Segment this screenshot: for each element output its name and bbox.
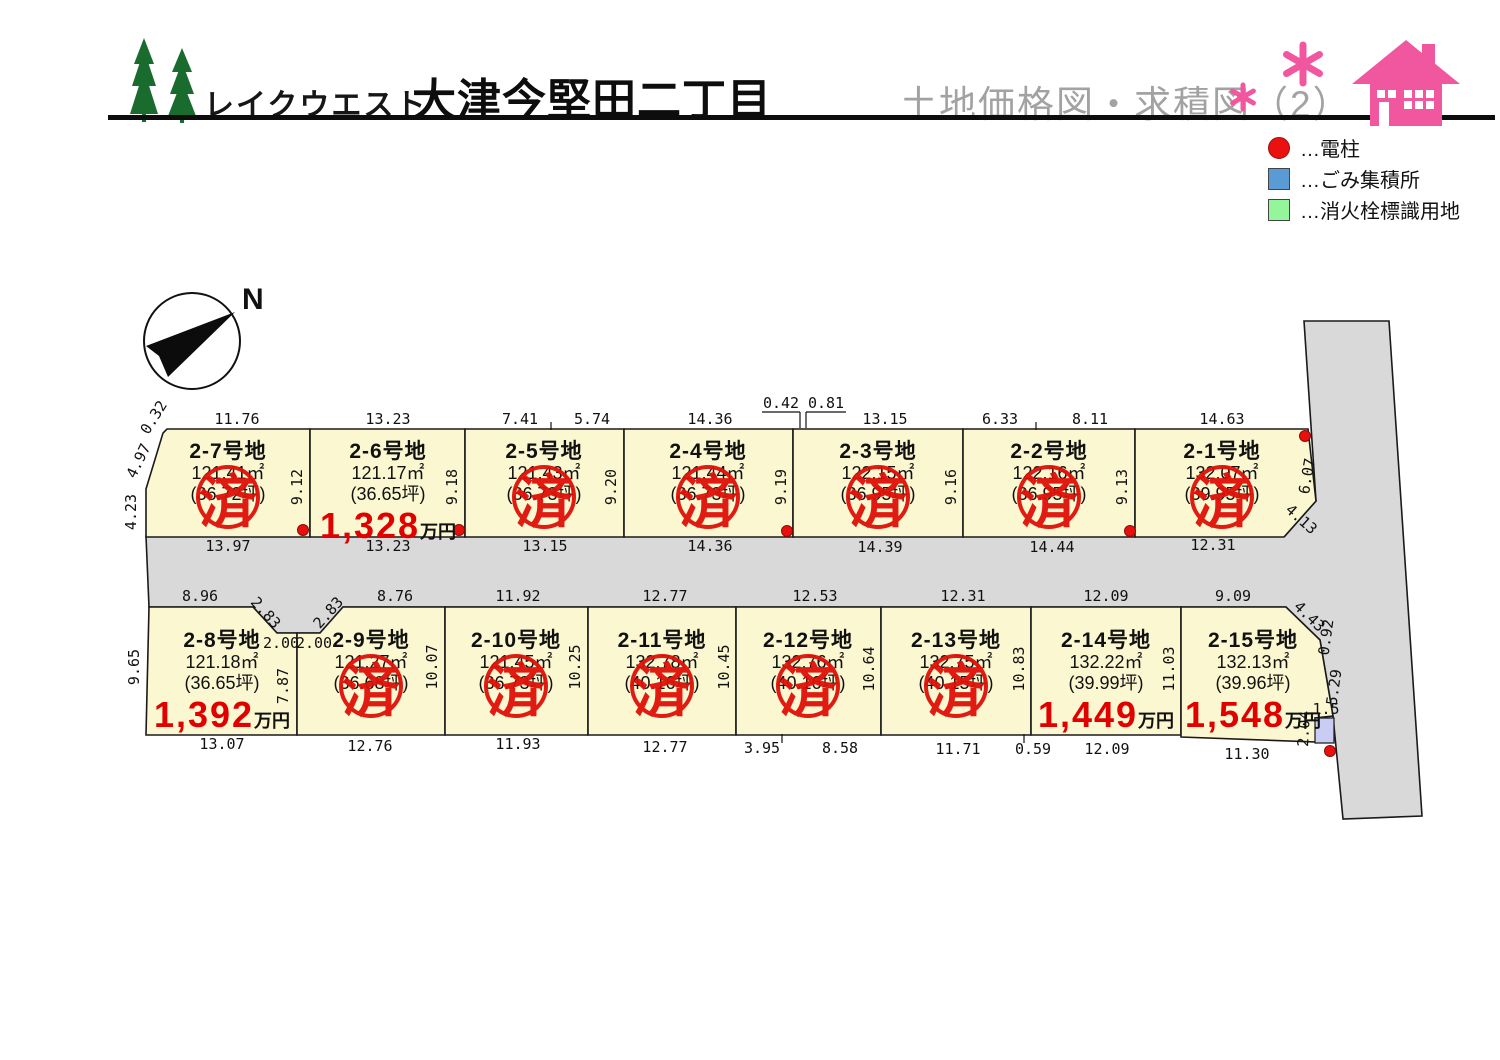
lot-name: 2-15号地 (1173, 630, 1333, 653)
lot-labels-layer: 2-7号地121.41㎡(36.72坪)済2-6号地121.17㎡(36.65坪… (0, 0, 1500, 1060)
lot-price: 1,449万円 (1026, 697, 1186, 733)
lot-price-unit: 万円 (420, 522, 456, 542)
sold-stamp: 済 (776, 654, 840, 718)
lot-price: 1,328万円 (308, 508, 468, 544)
lot-label-2-8: 2-8号地121.18㎡(36.65坪)1,392万円 (142, 630, 302, 733)
sold-stamp: 済 (196, 465, 260, 529)
sold-stamp: 済 (846, 465, 910, 529)
lot-price-unit: 万円 (254, 711, 290, 731)
lot-area-tsubo: (36.65坪) (142, 674, 302, 695)
lot-name: 2-8号地 (142, 630, 302, 653)
lot-price: 1,392万円 (142, 697, 302, 733)
lot-area-tsubo: (39.96坪) (1173, 674, 1333, 695)
sold-stamp: 済 (512, 465, 576, 529)
sold-stamp: 済 (339, 654, 403, 718)
lot-area: 132.13㎡ (1173, 653, 1333, 674)
sold-stamp: 済 (1017, 465, 1081, 529)
lot-price-amount: 1,392 (154, 694, 254, 735)
lot-area: 121.18㎡ (142, 653, 302, 674)
lot-price-amount: 1,449 (1038, 694, 1138, 735)
lot-price-amount: 1,328 (320, 505, 420, 546)
land-price-map-page: レイクウエスト 大津今堅田二丁目 土地価格図・求積図（2） …電柱 …ごみ集積所 (0, 0, 1500, 1060)
sold-stamp: 済 (484, 654, 548, 718)
sold-stamp: 済 (924, 654, 988, 718)
lot-price-unit: 万円 (1138, 711, 1174, 731)
sold-stamp: 済 (676, 465, 740, 529)
lot-label-2-14: 2-14号地132.22㎡(39.99坪)1,449万円 (1026, 630, 1186, 733)
sold-stamp: 済 (630, 654, 694, 718)
lot-area-tsubo: (39.99坪) (1026, 674, 1186, 695)
lot-area: 121.17㎡ (308, 464, 468, 485)
lot-area-tsubo: (36.65坪) (308, 485, 468, 506)
lot-area: 132.22㎡ (1026, 653, 1186, 674)
sold-stamp: 済 (1190, 465, 1254, 529)
lot-label-2-15: 2-15号地132.13㎡(39.96坪)1,548万円 (1173, 630, 1333, 733)
lot-price: 1,548万円 (1173, 697, 1333, 733)
lot-name: 2-14号地 (1026, 630, 1186, 653)
lot-price-amount: 1,548 (1185, 694, 1285, 735)
lot-label-2-6: 2-6号地121.17㎡(36.65坪)1,328万円 (308, 441, 468, 544)
lot-name: 2-6号地 (308, 441, 468, 464)
lot-price-unit: 万円 (1285, 711, 1321, 731)
